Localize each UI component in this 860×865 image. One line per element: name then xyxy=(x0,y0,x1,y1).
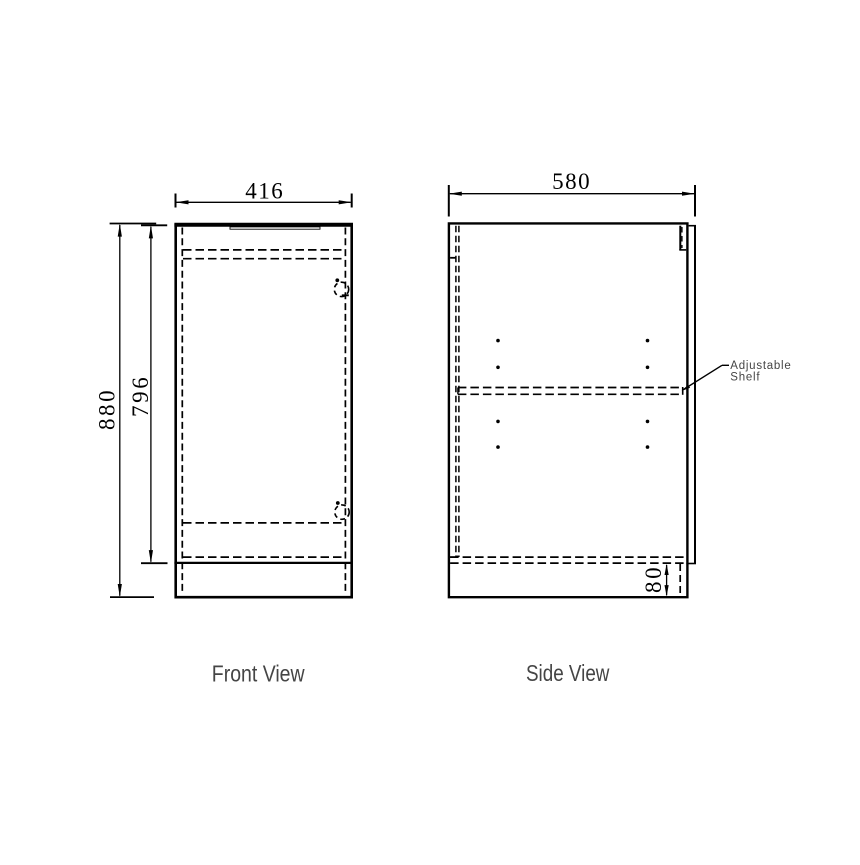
svg-text:880: 880 xyxy=(94,388,119,430)
svg-text:416: 416 xyxy=(245,179,284,204)
svg-text:Shelf: Shelf xyxy=(730,372,760,384)
svg-text:580: 580 xyxy=(552,169,591,194)
svg-text:796: 796 xyxy=(128,375,153,417)
svg-text:80: 80 xyxy=(641,565,666,593)
svg-text:Adjustable: Adjustable xyxy=(730,360,791,372)
svg-text:Front View: Front View xyxy=(212,661,305,687)
svg-text:Side View: Side View xyxy=(526,660,610,686)
